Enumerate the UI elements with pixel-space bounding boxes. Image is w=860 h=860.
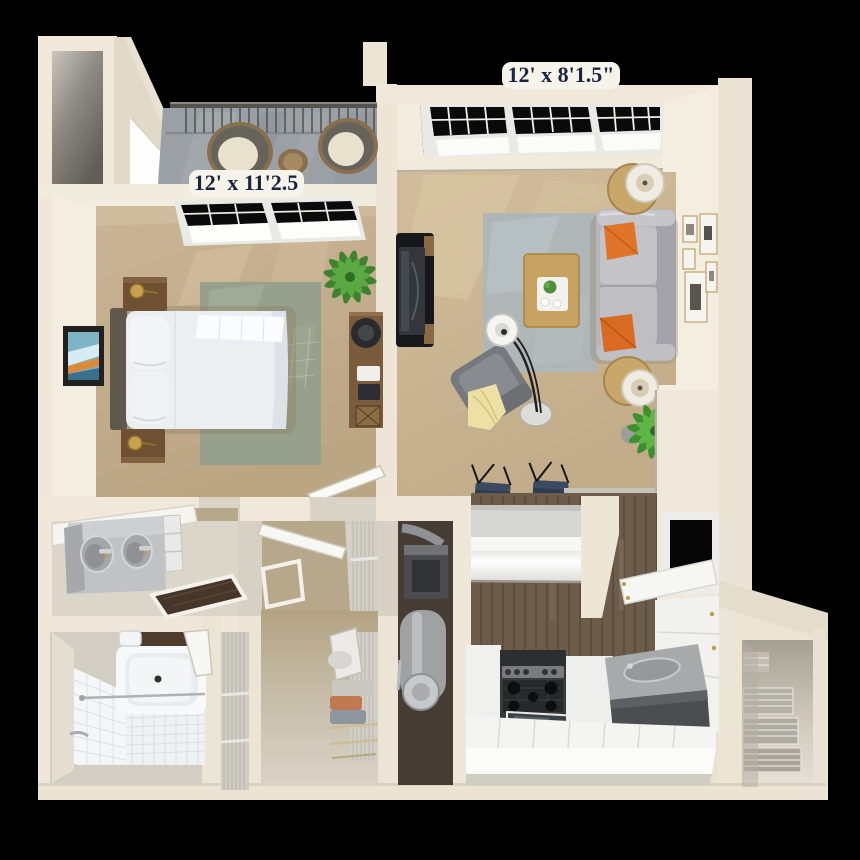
- svg-text:12' x 11'2.5: 12' x 11'2.5: [194, 170, 299, 195]
- svg-text:12' x 8'1.5": 12' x 8'1.5": [508, 62, 615, 87]
